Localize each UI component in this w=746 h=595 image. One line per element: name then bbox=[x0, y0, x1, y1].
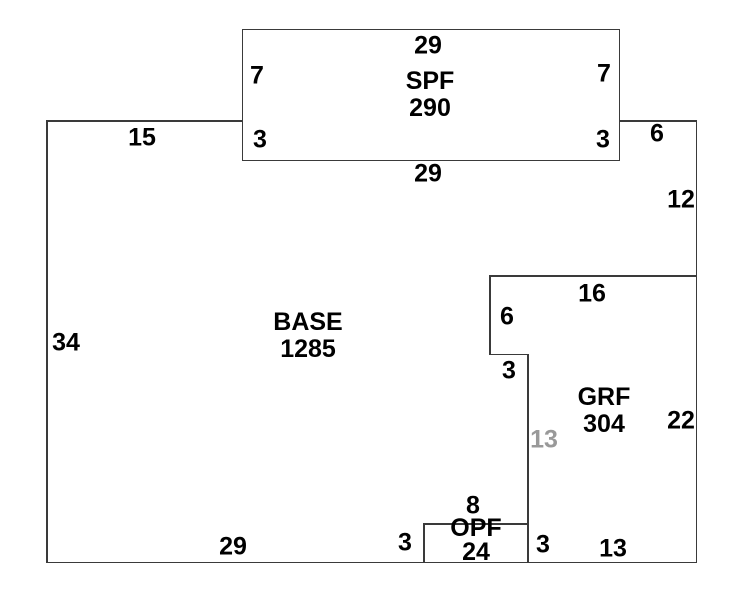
region-label-grf: GRF 304 bbox=[578, 384, 631, 438]
dim-right-wall-upper: 12 bbox=[667, 188, 695, 213]
region-spf-area: 290 bbox=[406, 95, 455, 122]
region-base-name: BASE bbox=[273, 309, 342, 336]
dim-spf-left-lower: 3 bbox=[253, 128, 267, 153]
region-label-spf: SPF 290 bbox=[406, 68, 455, 122]
floorplan-sketch-canvas: SPF 290 BASE 1285 GRF 304 OPF 24 29 7 7 … bbox=[0, 0, 746, 595]
region-grf-area: 304 bbox=[578, 411, 631, 438]
region-label-base: BASE 1285 bbox=[273, 309, 342, 363]
grf-wall-top bbox=[489, 275, 697, 277]
wall-top-left bbox=[46, 120, 243, 122]
grf-wall-left-upper bbox=[489, 275, 491, 355]
dim-spf-right-lower: 3 bbox=[596, 128, 610, 153]
dim-spf-left-upper: 7 bbox=[250, 64, 264, 89]
dim-opf-right: 3 bbox=[536, 533, 550, 558]
region-opf-area: 24 bbox=[450, 540, 501, 564]
dim-bottom-left: 29 bbox=[219, 535, 247, 560]
region-base-area: 1285 bbox=[273, 336, 342, 363]
dim-spf-top-width: 29 bbox=[414, 34, 442, 59]
dim-opf-left: 3 bbox=[398, 531, 412, 556]
dim-grf-top: 16 bbox=[578, 282, 606, 307]
dim-spf-bottom-width: 29 bbox=[414, 162, 442, 187]
dim-left-wall: 34 bbox=[52, 331, 80, 356]
dim-base-top-left: 15 bbox=[128, 126, 156, 151]
wall-right bbox=[696, 120, 698, 563]
dim-spf-right-upper: 7 bbox=[597, 62, 611, 87]
dim-grf-left-upper: 6 bbox=[500, 305, 514, 330]
dim-bottom-right: 13 bbox=[599, 537, 627, 562]
dim-grf-step: 3 bbox=[502, 359, 516, 384]
region-label-opf: OPF 24 bbox=[450, 516, 501, 564]
region-grf-name: GRF bbox=[578, 384, 631, 411]
dim-base-top-right: 6 bbox=[650, 122, 664, 147]
dim-grf-right-wall: 22 bbox=[667, 409, 695, 434]
wall-left bbox=[46, 120, 48, 563]
grf-wall-step bbox=[489, 354, 529, 356]
grf-wall-left-lower bbox=[527, 354, 529, 563]
region-opf-name: OPF bbox=[450, 516, 501, 540]
region-spf-name: SPF bbox=[406, 68, 455, 95]
dim-opf-top: 8 bbox=[466, 494, 480, 519]
opf-wall-left bbox=[423, 523, 425, 563]
dim-grf-inner-shared: 13 bbox=[530, 428, 558, 453]
